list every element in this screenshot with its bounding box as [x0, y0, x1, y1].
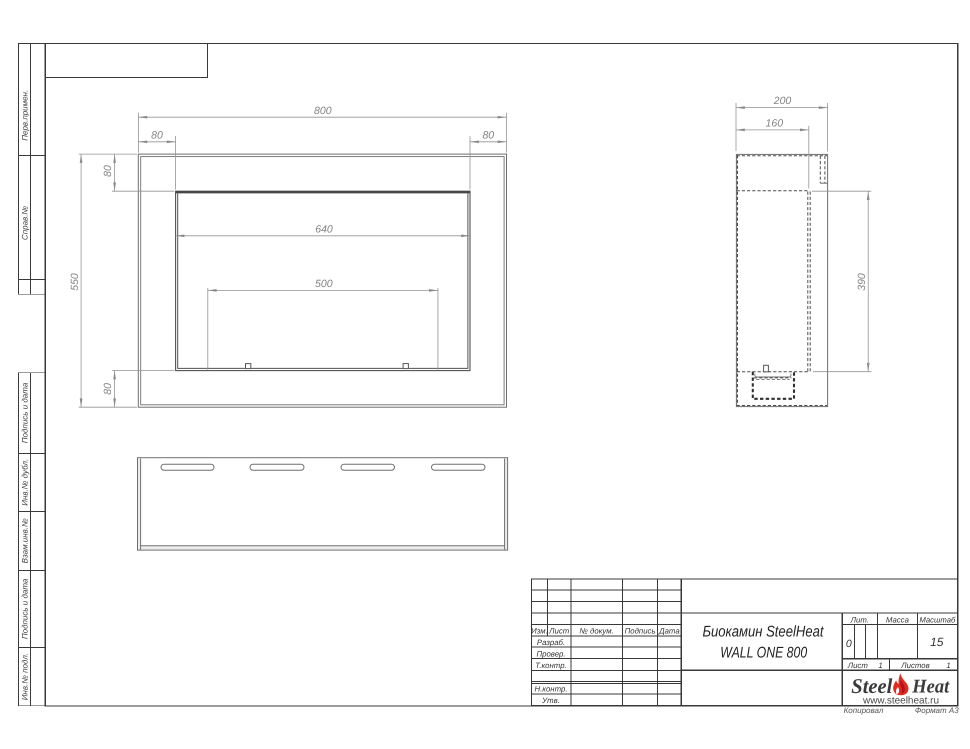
- svg-text:Биокамин SteelHeat: Биокамин SteelHeat: [703, 623, 825, 640]
- svg-text:Копировал: Копировал: [844, 706, 884, 715]
- svg-text:200: 200: [773, 95, 792, 107]
- svg-text:Т.контр.: Т.контр.: [535, 661, 566, 670]
- svg-text:0: 0: [846, 638, 852, 650]
- svg-text:№ докум.: № докум.: [579, 626, 613, 635]
- svg-text:1: 1: [946, 661, 950, 670]
- svg-text:80: 80: [482, 130, 494, 142]
- svg-text:390: 390: [856, 273, 868, 291]
- svg-text:Листов: Листов: [900, 661, 929, 670]
- svg-text:Масса: Масса: [886, 615, 910, 624]
- svg-text:80: 80: [102, 165, 114, 177]
- svg-text:550: 550: [69, 273, 81, 291]
- svg-text:800: 800: [314, 105, 332, 117]
- svg-text:Лист: Лист: [548, 626, 570, 635]
- svg-text:Подпись: Подпись: [625, 626, 656, 635]
- svg-text:Масштаб: Масштаб: [919, 615, 956, 624]
- svg-text:80: 80: [151, 130, 163, 142]
- svg-text:Провер.: Провер.: [536, 649, 565, 658]
- svg-text:1: 1: [878, 661, 882, 670]
- svg-text:160: 160: [766, 118, 784, 130]
- svg-text:Лит.: Лит.: [850, 615, 869, 624]
- svg-text:Взам.инв.№: Взам.инв.№: [20, 518, 29, 563]
- svg-text:Лист: Лист: [847, 661, 869, 670]
- svg-text:Steel: Steel: [851, 674, 892, 698]
- svg-text:Инв.№ подл.: Инв.№ подл.: [20, 653, 29, 700]
- svg-text:Изм.: Изм.: [531, 626, 548, 635]
- svg-text:640: 640: [315, 223, 333, 235]
- svg-text:Справ.№: Справ.№: [20, 206, 29, 240]
- svg-text:www.steelheat.ru: www.steelheat.ru: [862, 695, 939, 706]
- svg-text:Перв.примен.: Перв.примен.: [20, 90, 29, 141]
- svg-text:Дата: Дата: [658, 626, 680, 635]
- svg-text:500: 500: [315, 278, 333, 290]
- svg-text:15: 15: [930, 635, 944, 649]
- svg-text:Формат А3: Формат А3: [915, 706, 959, 715]
- svg-text:Н.контр.: Н.контр.: [534, 685, 567, 694]
- svg-text:Утв.: Утв.: [541, 696, 560, 705]
- svg-text:WALL ONE 800: WALL ONE 800: [720, 645, 807, 662]
- svg-text:Подпись и дата: Подпись и дата: [20, 578, 29, 639]
- svg-text:Инв.№ дубл.: Инв.№ дубл.: [20, 459, 29, 506]
- svg-text:80: 80: [102, 383, 114, 395]
- svg-text:Разраб.: Разраб.: [537, 638, 565, 647]
- svg-text:Подпись и дата: Подпись и дата: [20, 382, 29, 443]
